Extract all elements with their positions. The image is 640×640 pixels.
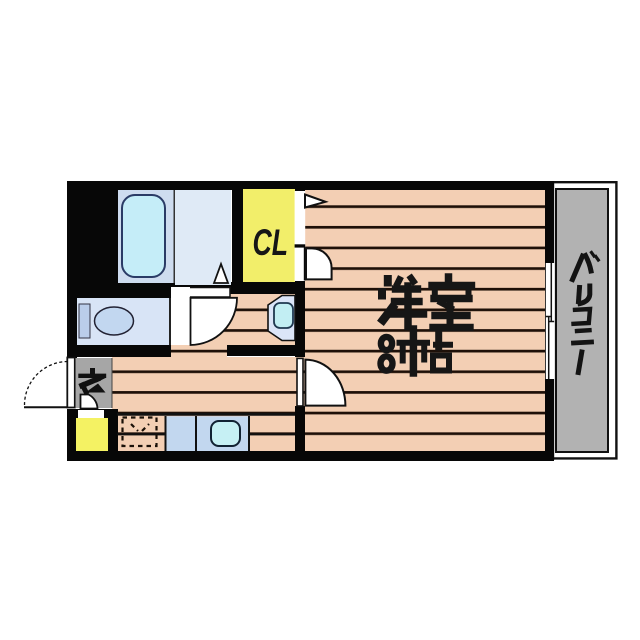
svg-text:CL: CL — [253, 222, 288, 263]
